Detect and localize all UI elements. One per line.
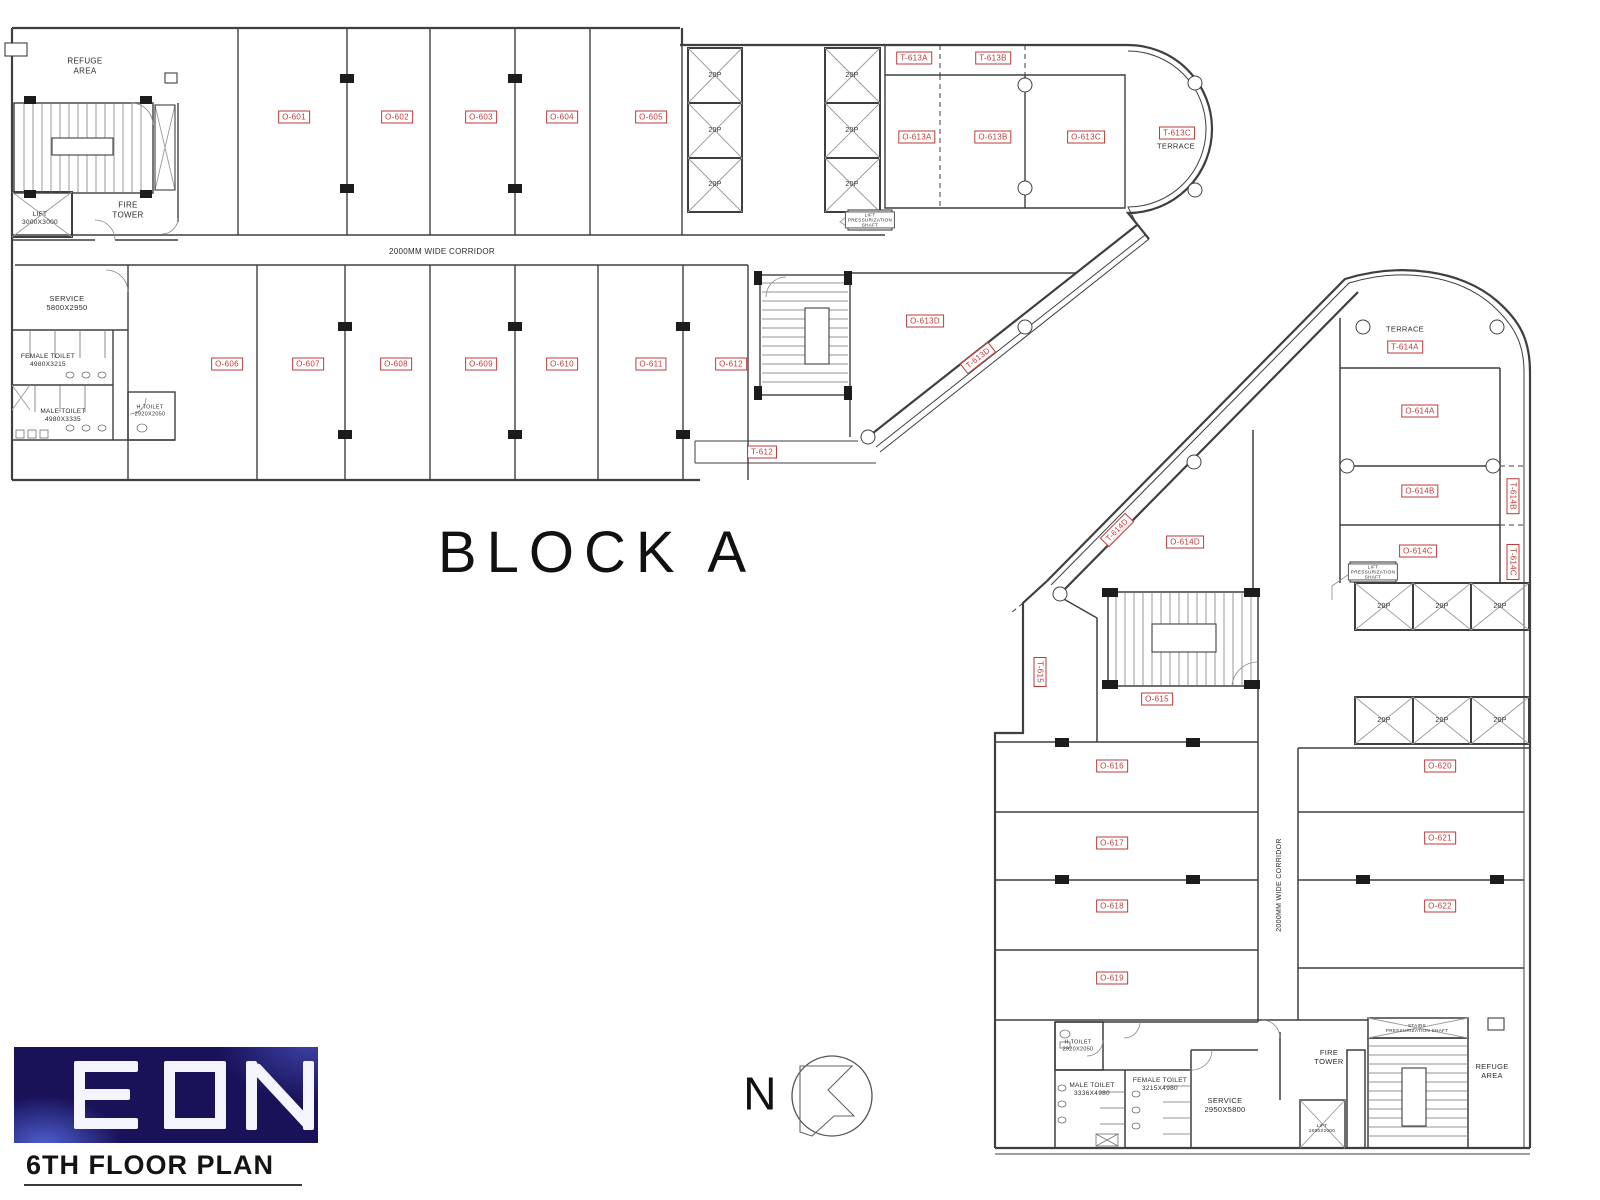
eon-logo-letters: [14, 1047, 318, 1143]
north-label: N: [743, 1066, 777, 1121]
lift-capacity: 20P: [1377, 717, 1390, 725]
terrace-label: T-613B: [975, 52, 1011, 65]
room-label: O-616: [1096, 760, 1128, 773]
room-label: O-609: [465, 358, 497, 371]
lift-capacity: 20P: [708, 181, 721, 189]
room-label: O-602: [381, 111, 413, 124]
terrace-label: T-614B: [1507, 478, 1520, 514]
lift-label: LIFT 3000X3000: [22, 211, 58, 227]
room-label: O-603: [465, 111, 497, 124]
terrace-label: T-613A: [896, 52, 932, 65]
lift-pressurization-label: LIFT PRESSURIZATION SHAFT: [845, 211, 895, 228]
terrace-label: T-614C: [1507, 544, 1520, 580]
room-label: O-614D: [1166, 536, 1204, 549]
room-label: O-622: [1424, 900, 1456, 913]
stairs-pressurization-label: STAIRS PRESSURIZATION SHAFT: [1386, 1023, 1448, 1033]
north-arrow-icon: [792, 1056, 872, 1136]
lift-capacity: 20P: [1435, 603, 1448, 611]
lift-label: LIFT 2000X2000: [1309, 1123, 1335, 1133]
room-label: O-605: [635, 111, 667, 124]
room-label: O-614B: [1401, 485, 1438, 498]
floor-plan-sheet: O-601 O-602 O-603 O-604 O-605 O-606 O-60…: [0, 0, 1600, 1200]
male-toilet-label: MALE TOILET 4980X3335: [40, 408, 85, 424]
terrace-label: T-614A: [1387, 341, 1423, 354]
female-toilet-label: FEMALE TOILET 3215X4980: [1133, 1077, 1187, 1093]
room-label: O-613C: [1067, 131, 1105, 144]
terrace-text: TERRACE: [1386, 325, 1424, 334]
h-toilet-label: H.TOILET 2920X2050: [1063, 1039, 1094, 1052]
sheet-title: 6TH FLOOR PLAN: [24, 1150, 302, 1186]
room-label: O-613D: [906, 315, 944, 328]
lift-capacity: 20P: [708, 72, 721, 80]
fire-tower-label: FIRE TOWER: [1314, 1048, 1343, 1066]
room-label: O-607: [292, 358, 324, 371]
room-label: O-601: [278, 111, 310, 124]
room-label: O-612: [715, 358, 747, 371]
block-title: BLOCK A: [438, 518, 756, 588]
corridor-label: 2000MM WIDE CORRIDOR: [1276, 838, 1284, 932]
refuge-area-label: REFUGE AREA: [1475, 1062, 1508, 1080]
terrace-label: T-612: [747, 446, 777, 459]
terrace-label: T-615: [1034, 657, 1047, 687]
room-label: O-613A: [898, 131, 935, 144]
service-label: SERVICE 2950X5800: [1204, 1096, 1245, 1114]
room-label: O-614C: [1399, 545, 1437, 558]
floorplan-linework: [0, 0, 1600, 1200]
room-label: O-617: [1096, 837, 1128, 850]
room-label: O-606: [211, 358, 243, 371]
room-label: O-615: [1141, 693, 1173, 706]
room-label: O-611: [635, 358, 666, 371]
lift-capacity: 20P: [1493, 603, 1506, 611]
lift-pressurization-label: LIFT PRESSURIZATION SHAFT: [1348, 563, 1398, 580]
room-label: O-620: [1424, 760, 1456, 773]
room-label: O-613B: [974, 131, 1011, 144]
fire-tower-label: FIRE TOWER: [112, 200, 143, 219]
lift-capacity: 20P: [1377, 603, 1390, 611]
female-toilet-label: FEMALE TOILET 4980X3215: [21, 353, 75, 369]
corridor-label: 2000MM WIDE CORRIDOR: [389, 247, 495, 257]
room-label: O-618: [1096, 900, 1128, 913]
lift-capacity: 20P: [845, 181, 858, 189]
lift-capacity: 20P: [708, 127, 721, 135]
room-label: O-614A: [1401, 405, 1438, 418]
lift-capacity: 20P: [845, 127, 858, 135]
room-label: O-619: [1096, 972, 1128, 985]
terrace-text: TERRACE: [1157, 142, 1195, 151]
room-label: O-608: [380, 358, 412, 371]
refuge-area-label: REFUGE AREA: [67, 56, 102, 75]
room-label: O-604: [546, 111, 578, 124]
eon-logo: [14, 1047, 318, 1143]
room-label: O-610: [546, 358, 578, 371]
lift-capacity: 20P: [1493, 717, 1506, 725]
male-toilet-label: MALE TOILET 3336X4980: [1069, 1082, 1114, 1098]
h-toilet-label: H.TOILET 2920X2050: [135, 404, 166, 417]
terrace-label: T-613C: [1159, 127, 1195, 140]
service-label: SERVICE 5800X2950: [46, 294, 87, 312]
lift-capacity: 20P: [1435, 717, 1448, 725]
room-label: O-621: [1424, 832, 1456, 845]
lift-capacity: 20P: [845, 72, 858, 80]
